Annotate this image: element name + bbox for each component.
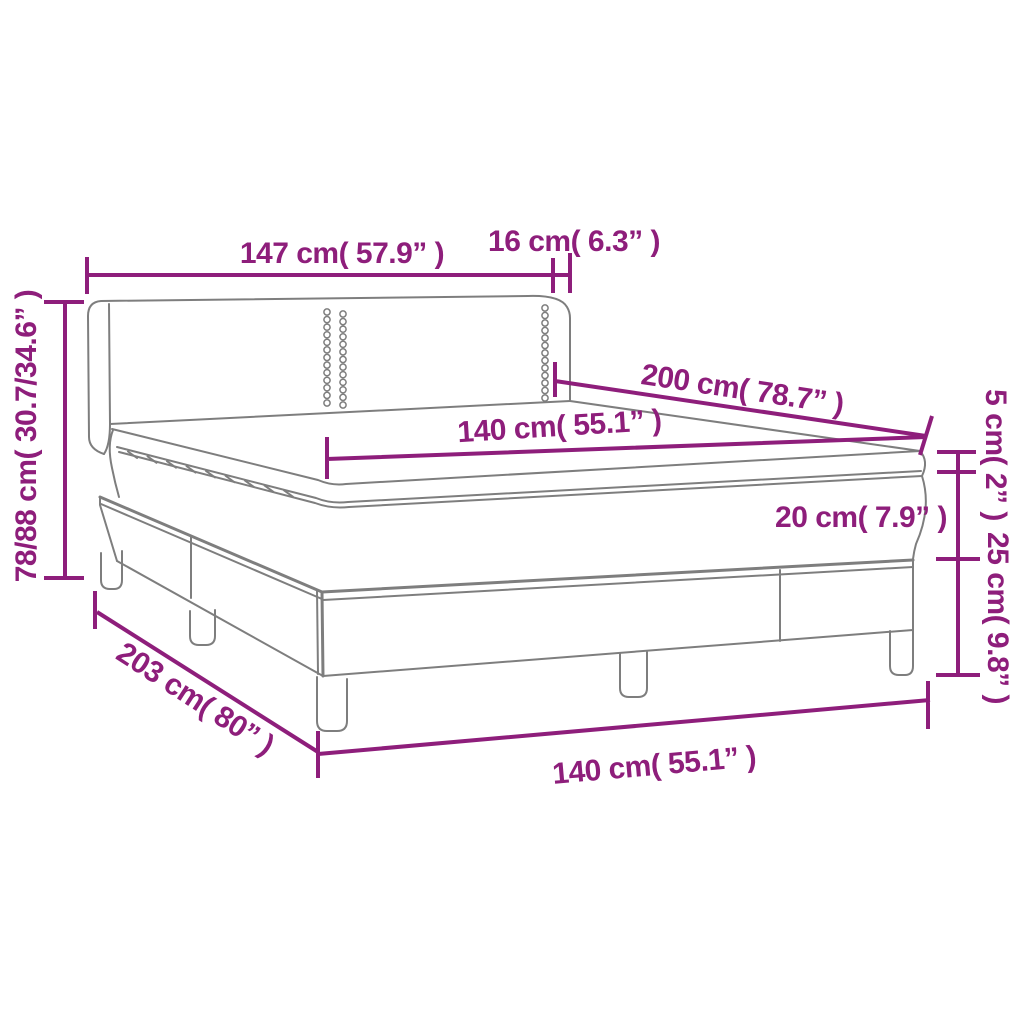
nailhead-stud [324, 400, 330, 406]
nailhead-stud [542, 372, 548, 378]
headboard-wing-inner-edge [104, 304, 110, 454]
nailhead-stud [340, 364, 346, 370]
leg-head-front [101, 551, 122, 589]
nailhead-stud [324, 332, 330, 338]
nailhead-stud [542, 350, 548, 356]
nailhead-stud [324, 347, 330, 353]
nailhead-stud [542, 327, 548, 333]
nailhead-stud [340, 349, 346, 355]
nailhead-stud [340, 326, 346, 332]
nailhead-stud [340, 319, 346, 325]
dim-label-topper-height: 5 cm( 2” ) [979, 389, 1012, 521]
base-front-top-piping [101, 504, 322, 599]
nailhead-stud [340, 341, 346, 347]
headboard-studs [324, 305, 548, 408]
dim-label-bed-width-bottom: 140 cm( 55.1” ) [551, 740, 757, 791]
base-foot-top-piping [323, 567, 913, 600]
nailhead-stud [324, 354, 330, 360]
nailhead-stud [542, 357, 548, 363]
nailhead-stud [340, 394, 346, 400]
dim-line-right-heights [936, 452, 980, 675]
nailhead-stud [542, 312, 548, 318]
dim-label-base-height: 25 cm( 9.8” ) [981, 532, 1014, 704]
nailhead-stud [324, 370, 330, 376]
nailhead-stud [340, 372, 346, 378]
nailhead-stud [542, 365, 548, 371]
nailhead-stud [340, 311, 346, 317]
base-front-top-edge [100, 497, 322, 592]
dim-label-mattress-height: 20 cm( 7.9” ) [775, 501, 947, 534]
nailhead-stud [542, 305, 548, 311]
dim-label-headboard-wing-depth: 16 cm( 6.3” ) [488, 225, 660, 258]
base-foot-top-edge [322, 560, 913, 592]
nailhead-stud [542, 387, 548, 393]
nailhead-stud [542, 320, 548, 326]
leg-mid-front [190, 610, 215, 645]
base-foot-bottom-edge [323, 630, 913, 676]
dim-label-overall-height: 78/88 cm( 30.7/34.6” ) [10, 290, 43, 583]
nailhead-stud [340, 356, 346, 362]
base-front-corner-piping [317, 590, 318, 674]
nailhead-stud [324, 339, 330, 345]
nailhead-stud [340, 379, 346, 385]
mattress-head-end-edge [110, 430, 119, 497]
dim-label-headboard-width: 147 cm( 57.9” ) [240, 237, 444, 270]
nailhead-stud [340, 334, 346, 340]
nailhead-stud [542, 380, 548, 386]
nailhead-stud [542, 395, 548, 401]
dim-label-overall-length: 203 cm( 80” ) [111, 636, 280, 762]
diagram-canvas: 147 cm( 57.9” ) 16 cm( 6.3” ) 78/88 cm( … [0, 0, 1024, 1024]
nailhead-stud [542, 342, 548, 348]
nailhead-stud [324, 309, 330, 315]
nailhead-stud [340, 402, 346, 408]
mattress [110, 430, 926, 559]
nailhead-stud [542, 335, 548, 341]
nailhead-stud [324, 324, 330, 330]
nailhead-stud [324, 362, 330, 368]
nailhead-stud [324, 377, 330, 383]
nailhead-stud [324, 385, 330, 391]
nailhead-stud [324, 317, 330, 323]
bed-dimension-diagram: 147 cm( 57.9” ) 16 cm( 6.3” ) 78/88 cm( … [0, 0, 1024, 1024]
leg-foot-front-corner [317, 677, 347, 731]
leg-foot-middle [620, 652, 647, 697]
nailhead-stud [324, 392, 330, 398]
dim-line-overall-height [44, 302, 84, 578]
dim-label-mattress-width-top: 140 cm( 55.1” ) [456, 404, 662, 449]
base-front-corner-edge [322, 592, 323, 676]
dimension-annotations: 147 cm( 57.9” ) 16 cm( 6.3” ) 78/88 cm( … [10, 225, 1014, 791]
dim-label-mattress-length: 200 cm( 78.7” ) [639, 358, 846, 421]
leg-foot-right [890, 630, 913, 675]
dim-line-mattress-width-top [327, 437, 926, 479]
nailhead-stud [340, 387, 346, 393]
